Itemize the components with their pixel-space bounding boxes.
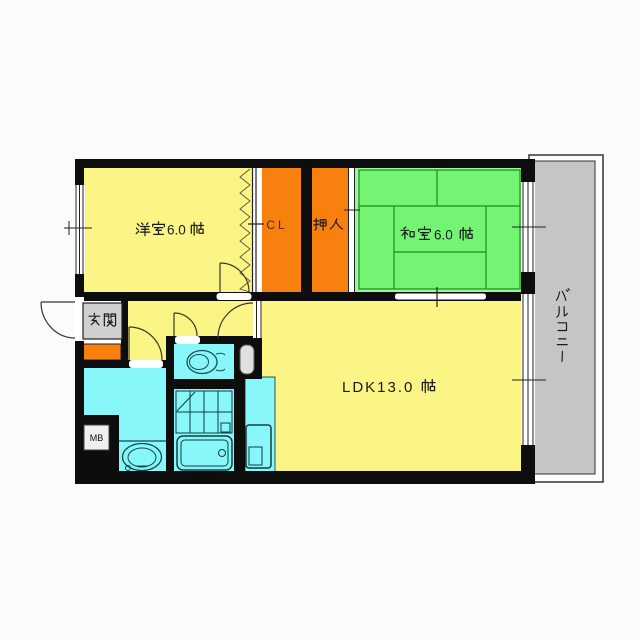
svg-text:MB: MB [90,433,104,443]
svg-text:6.0: 6.0 [167,223,186,238]
svg-text:CL: CL [266,218,287,232]
svg-text:LDK13.0: LDK13.0 [342,379,414,396]
svg-text:6.0: 6.0 [434,228,453,243]
